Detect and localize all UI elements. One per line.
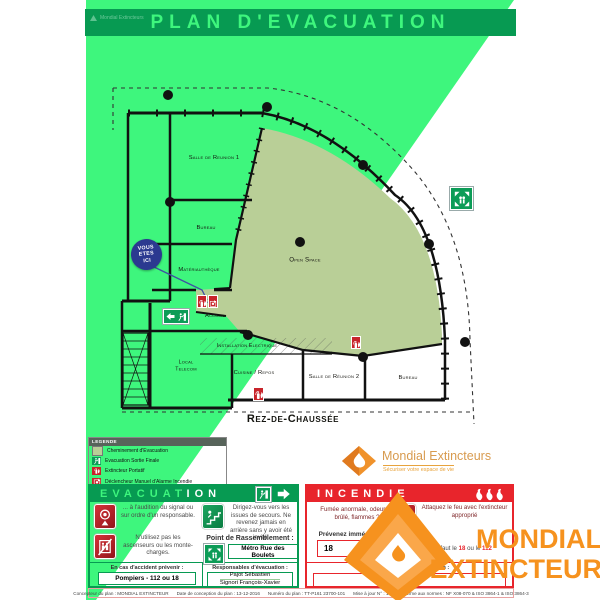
room-label-local: Local bbox=[175, 359, 196, 366]
fire-alarm-icon bbox=[208, 295, 218, 308]
room-label-bureau-droite: Bureau bbox=[398, 375, 417, 381]
evacuation-instruction-elevator: N'utilisez pas les ascenseurs ou les mon… bbox=[94, 534, 196, 559]
accident-label: En cas d'accident prévenir : bbox=[111, 565, 184, 571]
mondial-diamond-icon bbox=[340, 445, 378, 477]
assembly-point-icon bbox=[450, 187, 473, 210]
divider bbox=[90, 562, 297, 563]
evac-responsible-label: Responsables d'évacuation : bbox=[212, 565, 288, 571]
evacuation-title-bar: EVACUATION bbox=[90, 486, 297, 502]
legend-item-label: Evacuation Sortie Finale bbox=[105, 458, 159, 464]
watermark-text-mondial: MONDIAL bbox=[476, 526, 600, 553]
stairs-exit-icon bbox=[202, 504, 224, 529]
evacuation-title: EVACUATION bbox=[100, 488, 256, 500]
evacuation-panel: EVACUATION ... à l'audition du signal ou… bbox=[88, 484, 299, 588]
extinguisher-icon bbox=[197, 295, 207, 308]
responsible-name: Signori François-Xavier bbox=[220, 579, 280, 587]
header-brand-mark: Mondial Extincteurs bbox=[90, 15, 144, 21]
responsible-name: Pajot Sébastien bbox=[230, 572, 271, 579]
exit-running-man-icon bbox=[256, 487, 271, 502]
legend-item: Evacuation Sortie Finale bbox=[89, 456, 226, 466]
accident-value: Pompiers - 112 ou 18 bbox=[98, 572, 196, 585]
evacuation-instruction-signal: ... à l'audition du signal ou sur ordre … bbox=[94, 504, 196, 529]
room-label-salle-reunion-2: Salle de Réunion 2 bbox=[309, 374, 360, 380]
rally-point-value: Métro Rue des Boulets bbox=[228, 544, 298, 559]
evacuation-plan-poster: PLAN D'EVACUATION Mondial Extincteurs bbox=[0, 0, 600, 600]
brand-tagline: Sécuriser votre espace de vie bbox=[383, 465, 454, 473]
final-exit-icon bbox=[92, 457, 101, 465]
extinguisher-icon bbox=[351, 336, 361, 349]
brand-name: Mondial Extincteurs bbox=[382, 449, 491, 463]
assembly-point-icon bbox=[204, 544, 224, 564]
watermark-text-extincteur: EXTINCTEUR bbox=[429, 556, 600, 583]
legend-item: Cheminement d'Evacuation bbox=[89, 446, 226, 456]
rally-point-label: Point de Rassemblement : bbox=[206, 535, 294, 542]
header-bar: PLAN D'EVACUATION bbox=[85, 9, 516, 36]
footer-designer: Concepteur du plan : MONDIAL EXTINCTEUR bbox=[73, 591, 168, 596]
legend-item-label: Extincteur Portatif bbox=[105, 468, 144, 474]
no-elevator-icon bbox=[94, 534, 116, 559]
brand-logo: Mondial Extincteurs Sécuriser votre espa… bbox=[340, 445, 515, 479]
instruction-text: N'utilisez pas les ascenseurs ou les mon… bbox=[120, 534, 196, 557]
legend-title: LEGENDE bbox=[89, 438, 226, 446]
divider bbox=[202, 562, 203, 588]
instruction-text: ... à l'audition du signal ou sur ordre … bbox=[120, 504, 196, 519]
room-label-bureau-gauche: Bureau bbox=[196, 225, 215, 231]
legend-item-label: Cheminement d'Evacuation bbox=[107, 448, 168, 454]
room-label-local-telecom: Local Telecom bbox=[175, 359, 196, 373]
room-label-materiautheque: Matériauthèque bbox=[178, 267, 219, 273]
arrow-right-icon bbox=[275, 488, 291, 500]
exit-sign bbox=[163, 309, 189, 324]
room-label-telecom: Telecom bbox=[175, 366, 196, 373]
rally-point-row: Métro Rue des Boulets bbox=[204, 544, 298, 564]
you-are-here-line3: ICI bbox=[143, 257, 151, 264]
extinguisher-icon bbox=[92, 467, 101, 475]
legend-item: Extincteur Portatif bbox=[89, 466, 226, 476]
brand-triangle-icon bbox=[90, 15, 97, 21]
arrow-left-icon bbox=[166, 312, 176, 321]
room-label-installation-electrique: Installation Electrique bbox=[217, 343, 278, 349]
room-label-open-space: Open Space bbox=[289, 257, 320, 264]
alarm-signal-icon bbox=[94, 504, 116, 529]
header-brand-label: Mondial Extincteurs bbox=[100, 15, 144, 21]
floor-label: Rez-de-Chaussée bbox=[247, 413, 339, 425]
footer-date: Date de conception du plan : 13-12-2016 bbox=[177, 591, 260, 596]
extinguisher-icon bbox=[253, 387, 264, 401]
evac-responsible-names: Pajot Sébastien Signori François-Xavier bbox=[207, 572, 293, 587]
room-label-salle-reunion-1: Salle de Reunion 1 bbox=[189, 155, 240, 161]
evacuation-path-icon bbox=[92, 446, 103, 456]
page-title: PLAN D'EVACUATION bbox=[85, 9, 516, 36]
room-label-cuisine-repos: Cuisine / Repos bbox=[234, 370, 275, 376]
room-label-accueil: Accueil bbox=[205, 313, 225, 319]
exit-running-man-icon bbox=[177, 312, 187, 322]
